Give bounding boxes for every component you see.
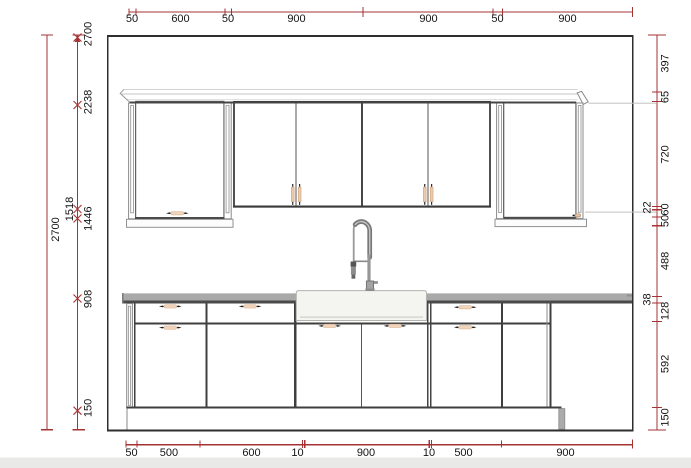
svg-text:1446: 1446 bbox=[83, 206, 95, 230]
svg-text:720: 720 bbox=[660, 145, 672, 163]
svg-text:397: 397 bbox=[660, 54, 672, 72]
svg-text:150: 150 bbox=[660, 408, 672, 426]
svg-text:488: 488 bbox=[660, 252, 672, 270]
svg-text:2700: 2700 bbox=[83, 22, 95, 46]
svg-text:1518: 1518 bbox=[64, 197, 76, 221]
svg-text:908: 908 bbox=[83, 290, 95, 308]
svg-text:900: 900 bbox=[556, 447, 574, 459]
svg-text:50: 50 bbox=[222, 13, 234, 25]
svg-text:10: 10 bbox=[291, 447, 303, 459]
svg-text:900: 900 bbox=[287, 13, 305, 25]
svg-text:2700: 2700 bbox=[50, 217, 62, 241]
svg-text:600: 600 bbox=[242, 447, 260, 459]
svg-text:150: 150 bbox=[83, 399, 95, 417]
svg-text:50: 50 bbox=[660, 215, 672, 227]
svg-text:22: 22 bbox=[642, 201, 654, 213]
svg-text:50: 50 bbox=[125, 447, 137, 459]
svg-text:38: 38 bbox=[642, 293, 654, 305]
svg-text:128: 128 bbox=[660, 302, 672, 320]
svg-text:900: 900 bbox=[419, 13, 437, 25]
svg-text:65: 65 bbox=[660, 91, 672, 103]
svg-text:900: 900 bbox=[558, 13, 576, 25]
svg-text:600: 600 bbox=[171, 13, 189, 25]
svg-text:2238: 2238 bbox=[83, 90, 95, 114]
svg-text:50: 50 bbox=[126, 13, 138, 25]
svg-text:60: 60 bbox=[660, 203, 672, 215]
svg-text:500: 500 bbox=[160, 447, 178, 459]
svg-text:900: 900 bbox=[357, 447, 375, 459]
svg-text:10: 10 bbox=[423, 447, 435, 459]
svg-text:50: 50 bbox=[491, 13, 503, 25]
svg-text:592: 592 bbox=[660, 355, 672, 373]
svg-text:500: 500 bbox=[454, 447, 472, 459]
